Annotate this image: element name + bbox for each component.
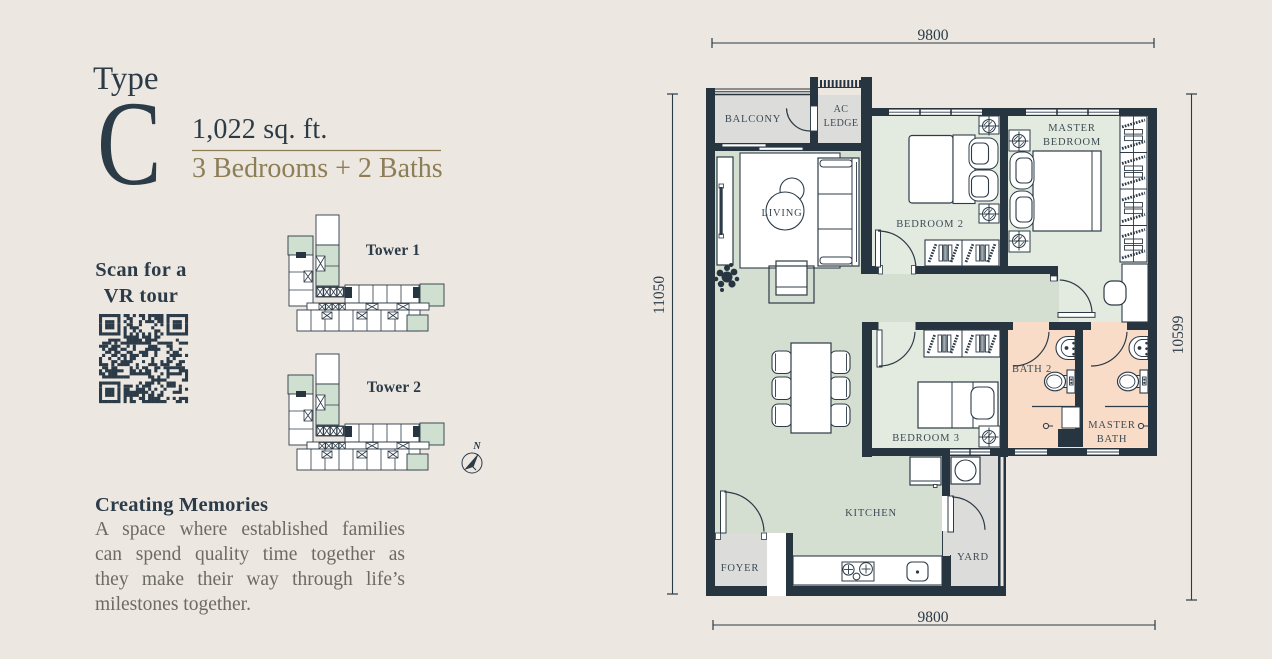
svg-text:Creating Memories: Creating Memories xyxy=(95,494,268,516)
svg-text:BEDROOM 3: BEDROOM 3 xyxy=(892,433,960,444)
svg-text:9800: 9800 xyxy=(918,609,949,626)
svg-text:Tower 1: Tower 1 xyxy=(366,242,420,259)
svg-text:MASTER: MASTER xyxy=(1048,123,1095,134)
svg-text:YARD: YARD xyxy=(957,552,989,563)
svg-text:VR tour: VR tour xyxy=(104,285,178,307)
svg-text:N: N xyxy=(472,441,481,452)
svg-text:BEDROOM: BEDROOM xyxy=(1043,137,1101,148)
svg-text:LEDGE: LEDGE xyxy=(824,118,859,129)
svg-text:LIVING: LIVING xyxy=(762,208,803,219)
svg-text:1,022 sq. ft.: 1,022 sq. ft. xyxy=(192,114,328,145)
svg-text:FOYER: FOYER xyxy=(721,563,759,574)
svg-text:3 Bedrooms + 2 Baths: 3 Bedrooms + 2 Baths xyxy=(192,153,443,184)
svg-text:10599: 10599 xyxy=(1170,315,1187,354)
svg-text:AC: AC xyxy=(834,104,849,115)
svg-text:BATH 2: BATH 2 xyxy=(1012,364,1052,375)
svg-text:MASTER: MASTER xyxy=(1088,420,1135,431)
svg-text:BALCONY: BALCONY xyxy=(725,114,781,125)
svg-text:Tower 2: Tower 2 xyxy=(367,379,421,396)
svg-text:C: C xyxy=(97,76,162,211)
svg-text:9800: 9800 xyxy=(918,27,949,44)
svg-text:11050: 11050 xyxy=(651,276,668,314)
svg-text:BEDROOM 2: BEDROOM 2 xyxy=(896,219,964,230)
svg-text:Scan for a: Scan for a xyxy=(95,259,186,281)
svg-text:BATH: BATH xyxy=(1097,434,1128,445)
svg-text:KITCHEN: KITCHEN xyxy=(845,508,897,519)
